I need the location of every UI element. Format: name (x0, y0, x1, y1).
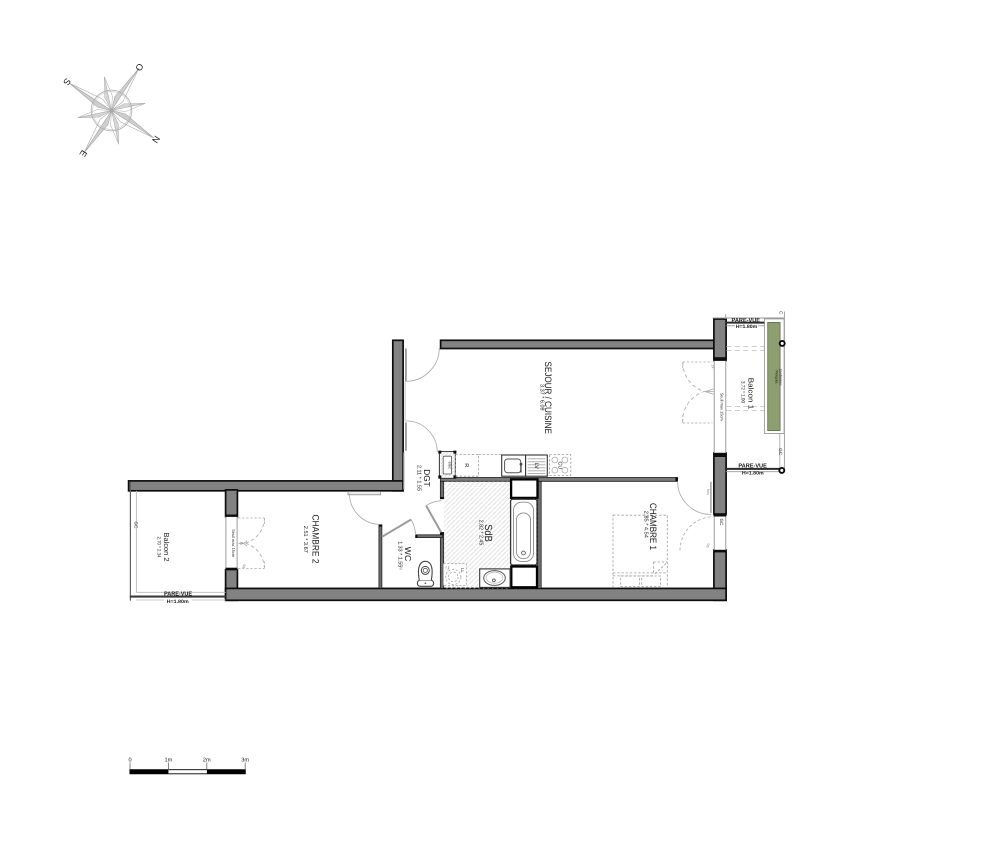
svg-text:PARE-VUE: PARE-VUE (732, 317, 761, 324)
svg-text:DGT: DGT (422, 469, 432, 487)
svg-text:WC: WC (403, 547, 413, 562)
svg-text:LV: LV (533, 463, 539, 470)
svg-text:E: E (77, 148, 89, 158)
svg-text:1.33 * 1.55: 1.33 * 1.55 (396, 541, 402, 567)
svg-text:2m: 2m (203, 758, 211, 764)
svg-text:H=1.80m: H=1.80m (736, 324, 758, 330)
svg-text:3.37 * 6.09: 3.37 * 6.09 (538, 384, 544, 411)
svg-text:Pergola: Pergola (774, 371, 778, 384)
svg-text:2.70 * 2.34: 2.70 * 2.34 (156, 537, 162, 558)
svg-text:9g: 9g (242, 564, 246, 568)
svg-text:2.51 * 3.67: 2.51 * 3.67 (302, 526, 308, 553)
svg-text:H=1.80m: H=1.80m (167, 599, 190, 605)
svg-text:3.72 * 1.00: 3.72 * 1.00 (740, 381, 746, 403)
svg-text:0: 0 (128, 758, 131, 764)
svg-text:Seuil max 15cm: Seuil max 15cm (231, 529, 236, 558)
svg-text:Balcon 1: Balcon 1 (747, 378, 756, 410)
svg-text:fres: fres (706, 489, 710, 495)
svg-text:S: S (61, 76, 73, 86)
svg-text:N: N (150, 134, 162, 145)
svg-text:Balcon 2: Balcon 2 (162, 533, 171, 562)
svg-text:R: R (463, 463, 469, 467)
svg-text:9g: 9g (399, 566, 403, 570)
svg-text:CHAMBRE 2: CHAMBRE 2 (311, 515, 321, 564)
svg-text:2.11 * 1.55: 2.11 * 1.55 (416, 465, 422, 491)
svg-text:2.85 * 4.54: 2.85 * 4.54 (642, 511, 648, 538)
svg-text:GC: GC (719, 519, 724, 527)
svg-text:Jardinière: Jardinière (779, 369, 783, 386)
svg-text:elec: elec (448, 462, 453, 469)
svg-text:C: C (779, 311, 784, 314)
svg-text:PARE-VUE: PARE-VUE (738, 463, 767, 470)
svg-text:CU: CU (557, 462, 563, 470)
svg-text:PARE-VUE: PARE-VUE (164, 590, 192, 597)
svg-text:H=1.80m: H=1.80m (742, 471, 764, 477)
svg-text:3m: 3m (241, 758, 249, 764)
svg-text:GC: GC (778, 448, 783, 456)
svg-text:LL: LL (460, 568, 465, 573)
svg-text:O: O (133, 62, 145, 73)
svg-text:9g: 9g (706, 544, 710, 548)
svg-text:1m: 1m (165, 758, 173, 764)
svg-text:2.82 * 2.45: 2.82 * 2.45 (477, 520, 483, 546)
svg-text:24: 24 (710, 365, 714, 369)
svg-text:CHAMBRE 1: CHAMBRE 1 (648, 503, 658, 550)
svg-text:Seuil max 15cm: Seuil max 15cm (720, 393, 725, 422)
svg-text:GC: GC (133, 522, 138, 530)
